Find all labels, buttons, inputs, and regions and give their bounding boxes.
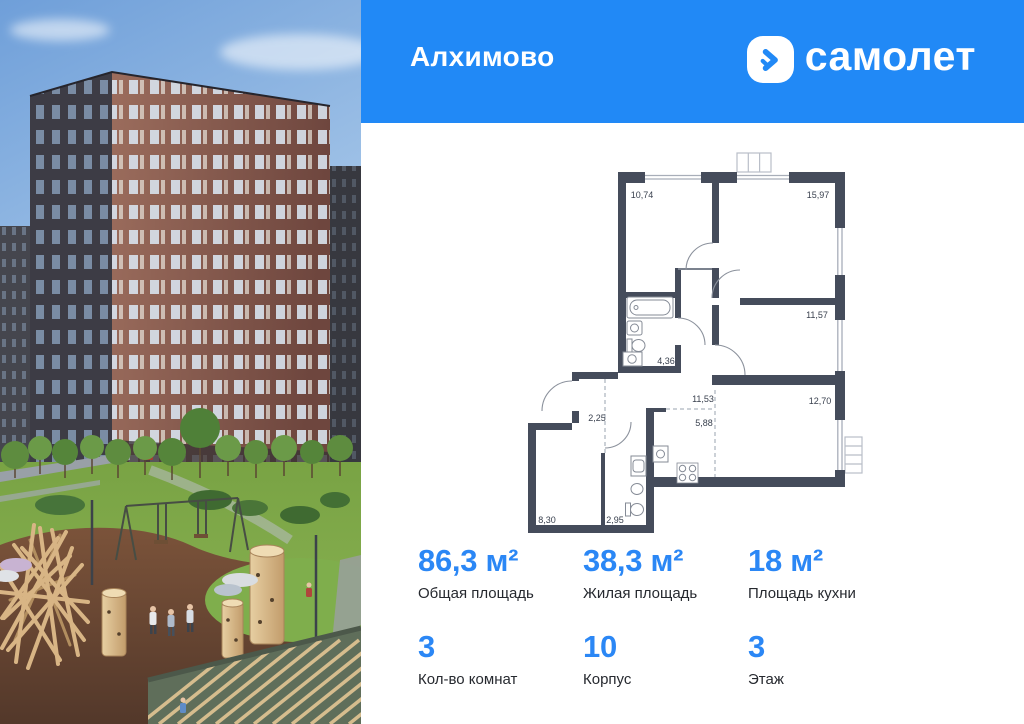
page-title: Алхимово [410, 41, 555, 73]
stat-value: 10 [583, 630, 748, 664]
stats-row-details: 3 Кол-во комнат 10 Корпус 3 Этаж [418, 630, 958, 689]
stat-label: Кол-во комнат [418, 671, 583, 689]
details-panel: Алхимово самолет [361, 0, 1024, 724]
stat-label: Этаж [748, 671, 913, 689]
stats-row-areas: 86,3 м² Общая площадь 38,3 м² Жилая площ… [418, 544, 958, 603]
stat-label: Жилая площадь [583, 585, 748, 603]
stat-floor-number: 3 Этаж [748, 630, 913, 689]
floor-plan: 10,74 15,97 11,57 4,36 2,25 11,53 5,88 1… [515, 145, 871, 537]
building-photo-scene [0, 0, 361, 724]
room-area-label: 10,74 [631, 190, 654, 200]
room-area-label: 5,88 [695, 418, 713, 428]
room-area-label: 2,25 [588, 413, 606, 423]
header-banner: Алхимово самолет [361, 0, 1024, 123]
room-area-label: 2,95 [606, 515, 624, 525]
stat-living-area: 38,3 м² Жилая площадь [583, 544, 748, 603]
apartment-tower [30, 72, 330, 480]
brand-name: самолет [805, 36, 976, 77]
stat-value: 18 м² [748, 544, 913, 578]
room-area-label: 4,36 [657, 356, 675, 366]
floor-plan-drawing: 10,74 15,97 11,57 4,36 2,25 11,53 5,88 1… [515, 145, 871, 537]
stat-value: 3 [748, 630, 913, 664]
room-area-label: 15,97 [807, 190, 830, 200]
windows [645, 176, 842, 471]
samolet-logo-icon [747, 36, 794, 83]
stat-value: 38,3 м² [583, 544, 748, 578]
stat-rooms-count: 3 Кол-во комнат [418, 630, 583, 689]
stat-label: Общая площадь [418, 585, 583, 603]
stat-value: 3 [418, 630, 583, 664]
room-area-label: 11,57 [806, 310, 828, 320]
apartment-stats: 86,3 м² Общая площадь 38,3 м² Жилая площ… [418, 544, 958, 689]
stat-kitchen-area: 18 м² Площадь кухни [748, 544, 913, 603]
stat-label: Площадь кухни [748, 585, 913, 603]
listing-card: Алхимово самолет [0, 0, 1024, 724]
stat-total-area: 86,3 м² Общая площадь [418, 544, 583, 603]
stat-building-number: 10 Корпус [583, 630, 748, 689]
room-area-label: 12,70 [809, 396, 832, 406]
building-photo [0, 0, 361, 724]
stat-label: Корпус [583, 671, 748, 689]
room-area-label: 11,53 [692, 394, 714, 404]
stat-value: 86,3 м² [418, 544, 583, 578]
room-area-label: 8,30 [538, 515, 556, 525]
brand-logo: самолет [747, 36, 976, 83]
